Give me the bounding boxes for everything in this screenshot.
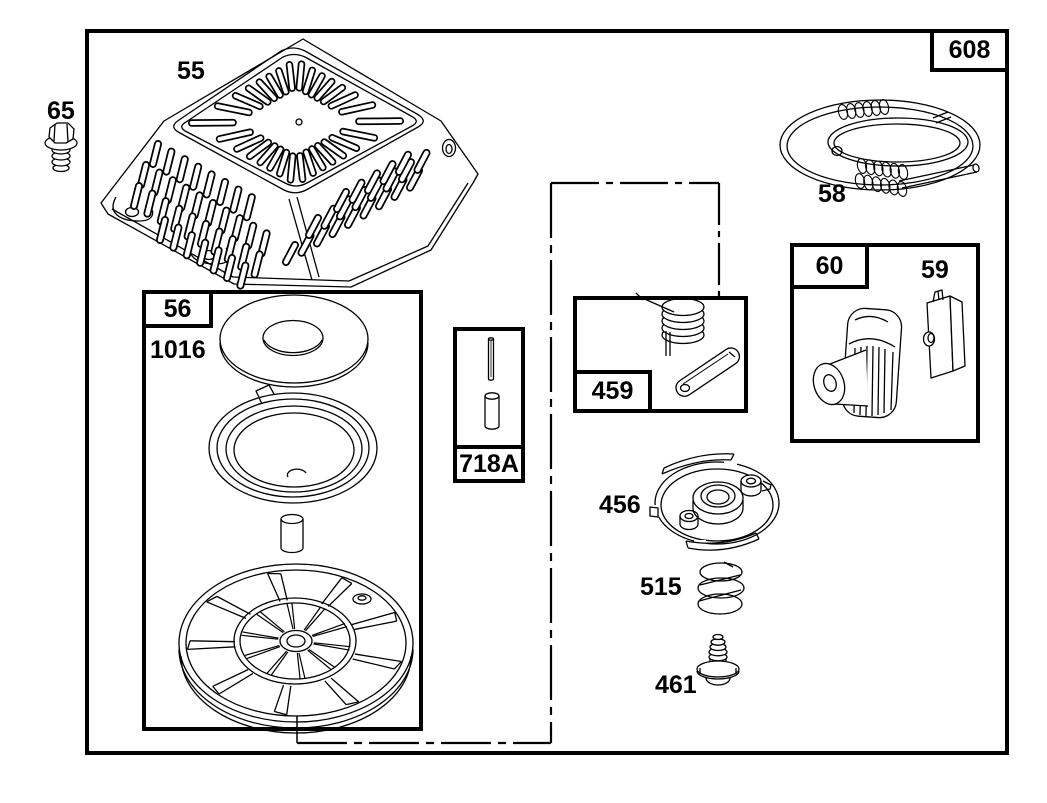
- label-cell-718a: 718A: [456, 445, 522, 480]
- part-label-456: 456: [599, 493, 641, 518]
- label-cell-459: 459: [573, 370, 652, 413]
- part-label-515: 515: [640, 575, 682, 600]
- label-cell-56: 56: [142, 290, 213, 328]
- part-label-65: 65: [47, 99, 75, 124]
- ref-label-608-cell: 608: [930, 29, 1009, 72]
- part-label-608: 608: [949, 38, 991, 63]
- part-label-1016: 1016: [150, 338, 206, 363]
- part-label-60: 60: [816, 254, 844, 279]
- part-label-461: 461: [655, 673, 697, 698]
- part-label-58: 58: [818, 182, 846, 207]
- part-label-459: 459: [592, 379, 634, 404]
- part-label-55: 55: [177, 59, 205, 84]
- parts-diagram: 608 56 718A 459 60 65 55 58 59 1016 456 …: [0, 0, 1047, 803]
- part-label-718a: 718A: [459, 452, 519, 477]
- bolt-drawing: [45, 123, 77, 172]
- label-cell-60: 60: [790, 243, 869, 289]
- part-label-59: 59: [921, 258, 949, 283]
- part-label-56: 56: [164, 297, 192, 322]
